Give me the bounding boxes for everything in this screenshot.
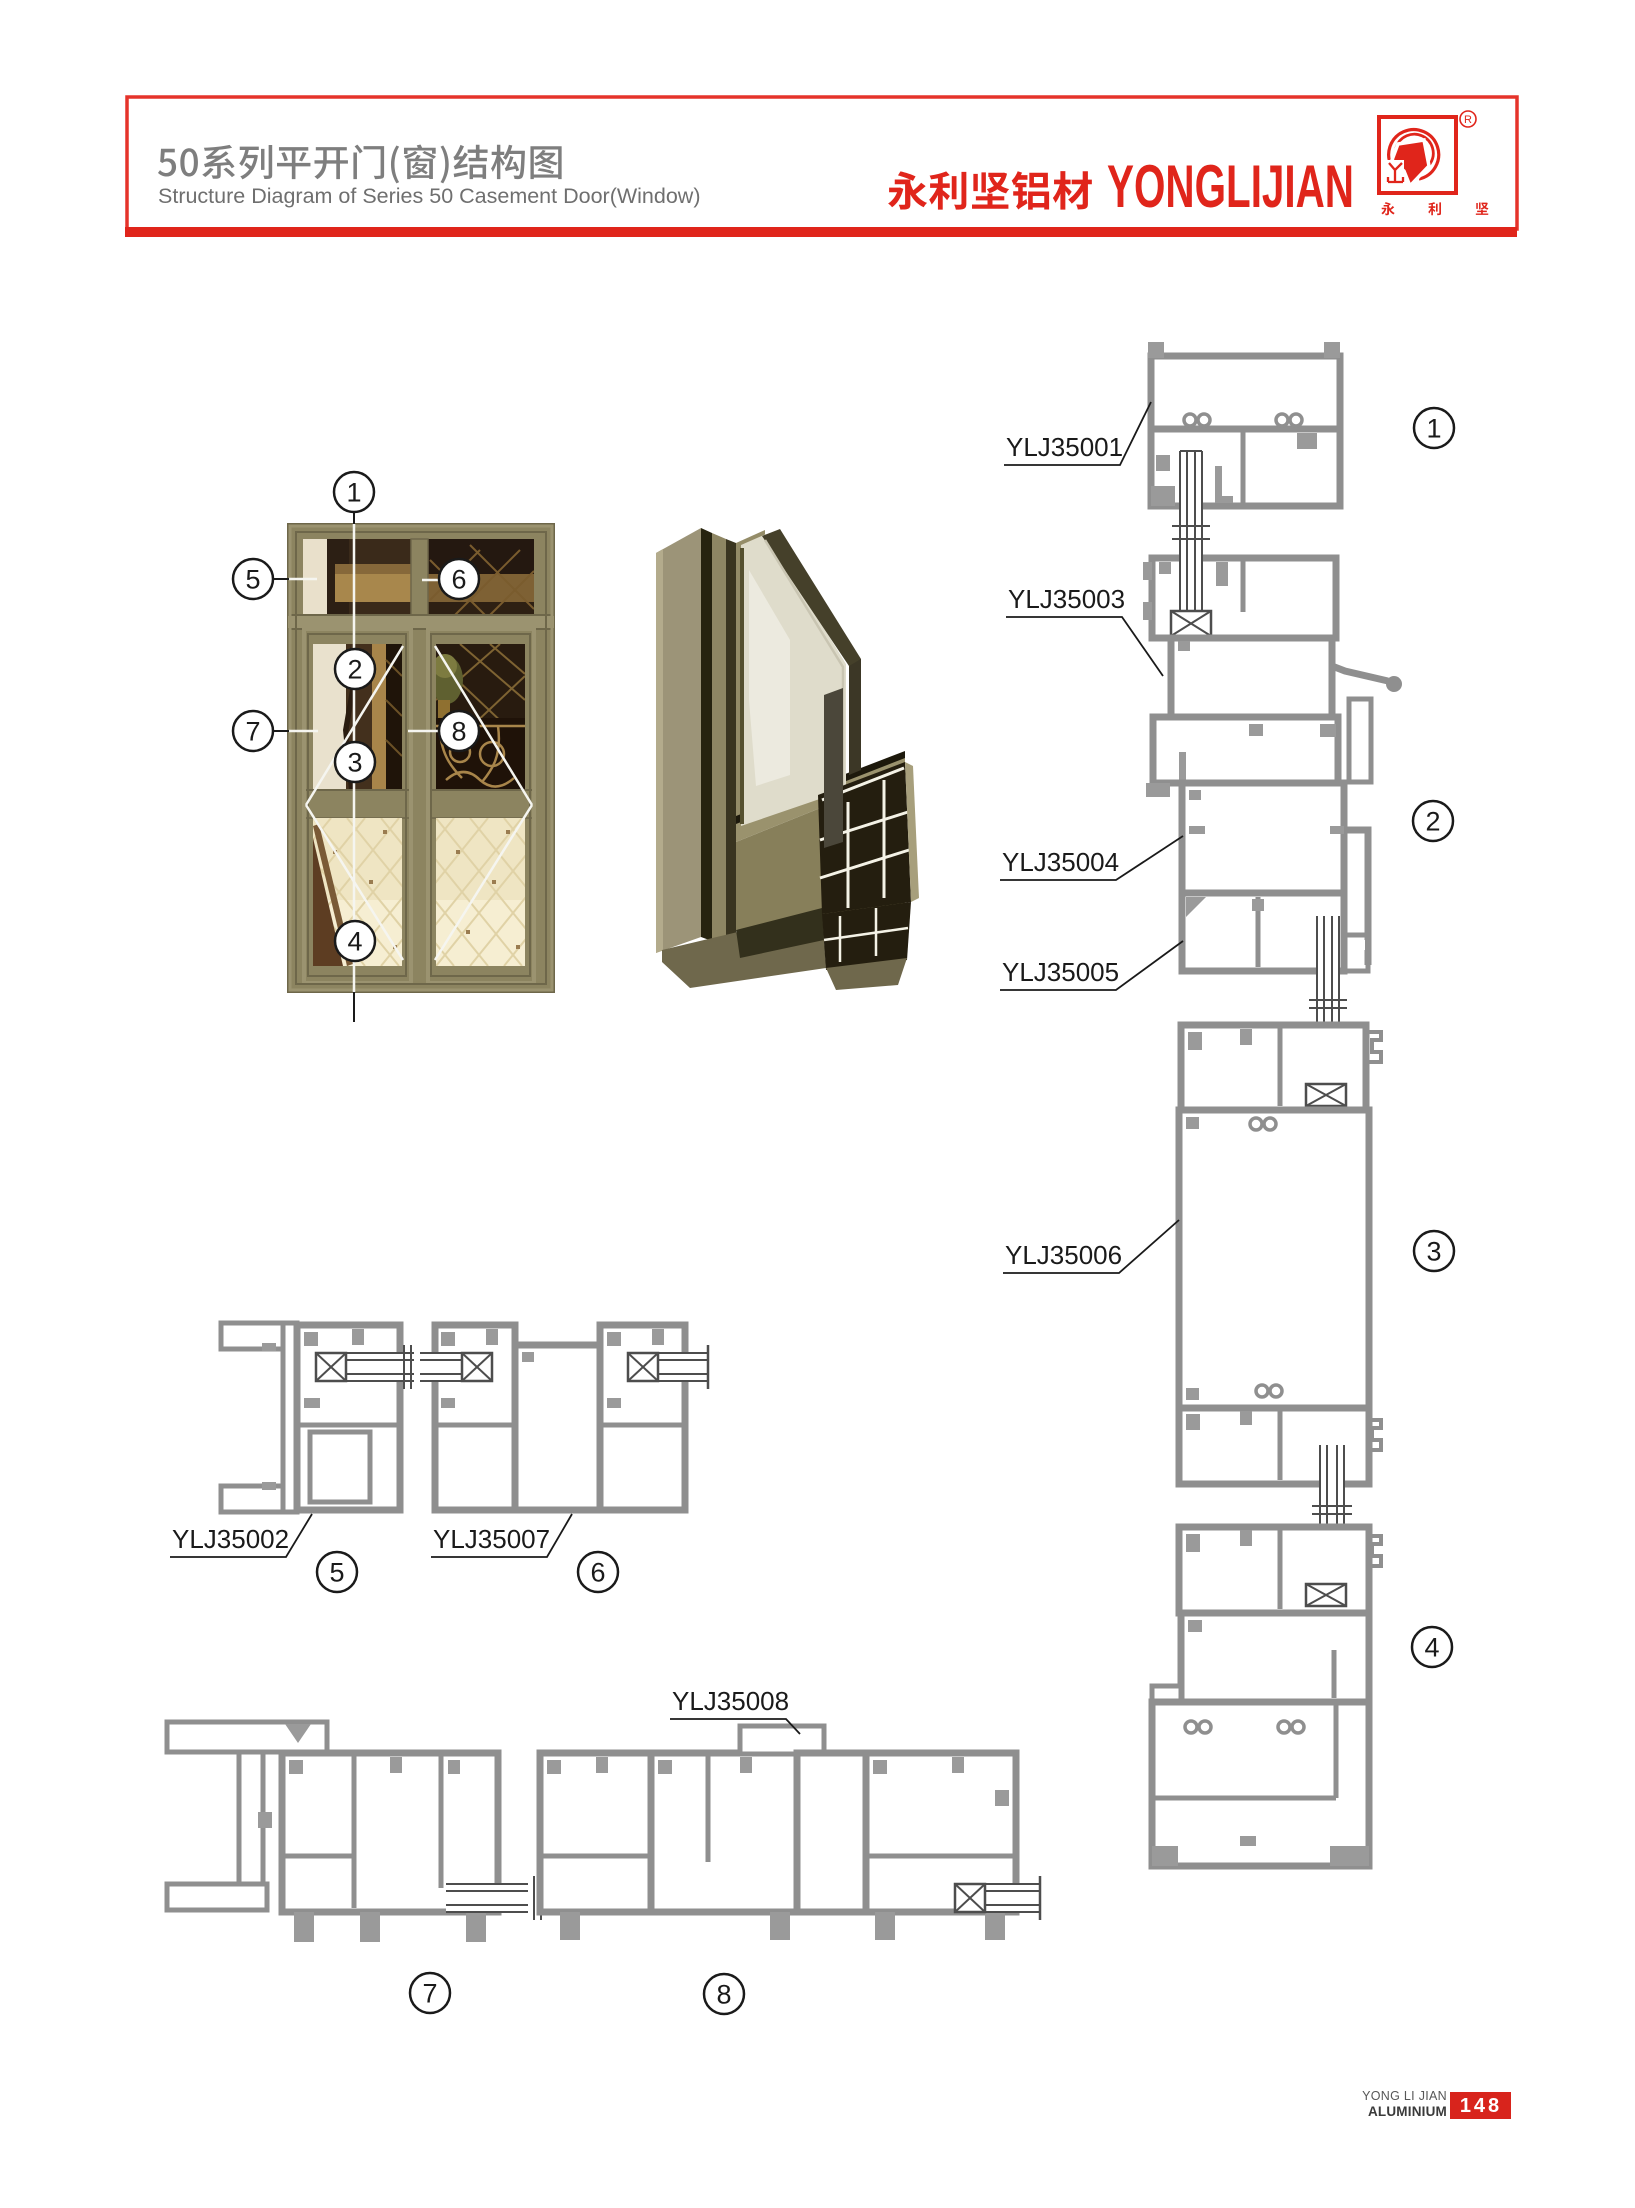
svg-text:3: 3 [1426, 1236, 1441, 1266]
svg-text:5: 5 [245, 564, 260, 594]
svg-text:2: 2 [1425, 806, 1440, 836]
svg-text:2: 2 [347, 654, 362, 684]
svg-text:4: 4 [1424, 1632, 1439, 1662]
svg-text:YLJ35003: YLJ35003 [1008, 584, 1125, 614]
svg-text:R: R [1464, 114, 1472, 126]
svg-text:YLJ35004: YLJ35004 [1002, 847, 1119, 877]
svg-text:YONGLIJIAN: YONGLIJIAN [1107, 153, 1354, 220]
svg-text:6: 6 [590, 1557, 605, 1587]
svg-text:148: 148 [1460, 2095, 1502, 2117]
svg-text:1: 1 [1426, 413, 1441, 443]
svg-text:4: 4 [347, 926, 362, 956]
svg-text:YLJ35007: YLJ35007 [433, 1524, 550, 1554]
svg-text:YLJ35002: YLJ35002 [172, 1524, 289, 1554]
svg-text:ALUMINIUM: ALUMINIUM [1368, 2104, 1447, 2119]
svg-text:8: 8 [716, 1979, 731, 2009]
svg-text:Structure Diagram of Series 50: Structure Diagram of Series 50 Casement … [158, 184, 700, 208]
svg-text:1: 1 [346, 477, 361, 507]
svg-text:8: 8 [451, 716, 466, 746]
svg-text:YLJ35006: YLJ35006 [1005, 1240, 1122, 1270]
svg-text:YLJ35008: YLJ35008 [672, 1686, 789, 1716]
svg-text:YLJ35001: YLJ35001 [1006, 432, 1123, 462]
svg-text:5: 5 [329, 1557, 344, 1587]
svg-text:7: 7 [245, 716, 260, 746]
svg-text:YONG LI JIAN: YONG LI JIAN [1362, 2089, 1447, 2103]
svg-text:6: 6 [451, 564, 466, 594]
svg-text:7: 7 [422, 1978, 437, 2008]
svg-text:3: 3 [347, 747, 362, 777]
svg-text:YLJ35005: YLJ35005 [1002, 957, 1119, 987]
